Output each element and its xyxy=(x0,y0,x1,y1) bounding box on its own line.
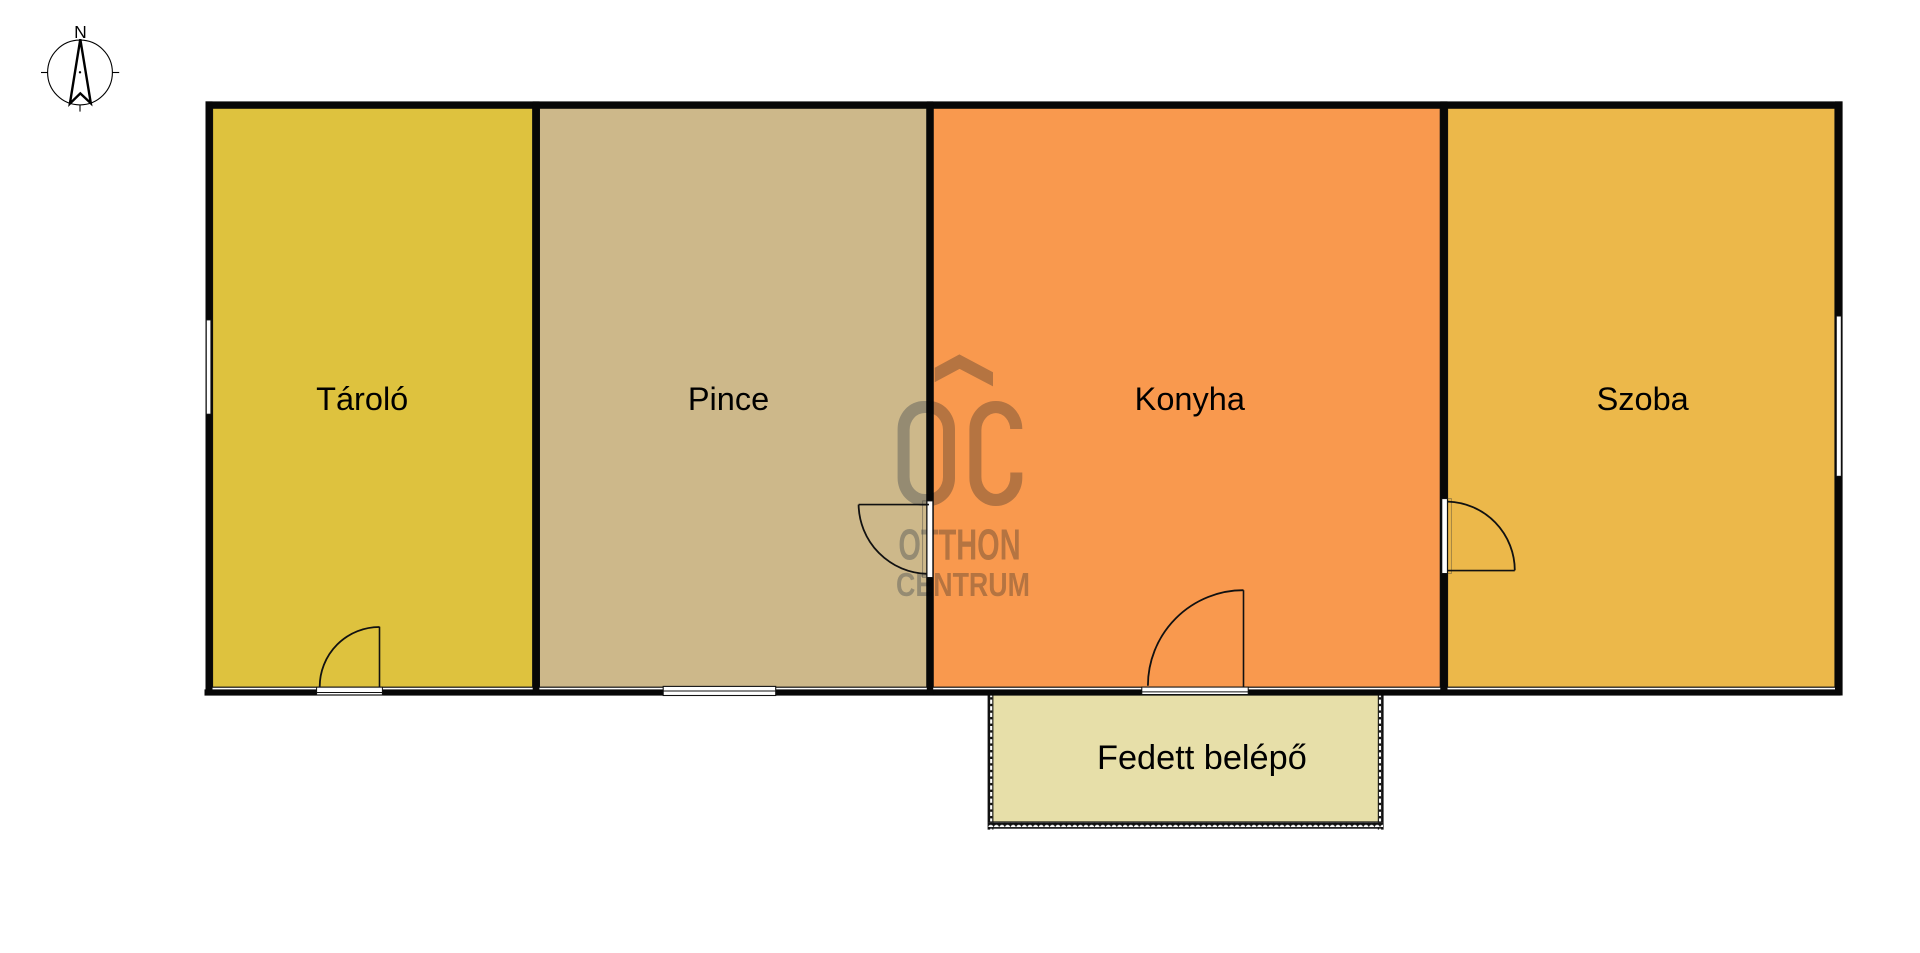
svg-text:Pince: Pince xyxy=(688,381,769,417)
svg-text:OTTHON: OTTHON xyxy=(898,521,1020,569)
svg-text:Fedett belépő: Fedett belépő xyxy=(1097,739,1307,777)
svg-text:Konyha: Konyha xyxy=(1135,381,1246,417)
svg-text:Szoba: Szoba xyxy=(1597,381,1690,417)
svg-text:Tároló: Tároló xyxy=(316,381,408,417)
svg-text:N: N xyxy=(74,22,87,42)
